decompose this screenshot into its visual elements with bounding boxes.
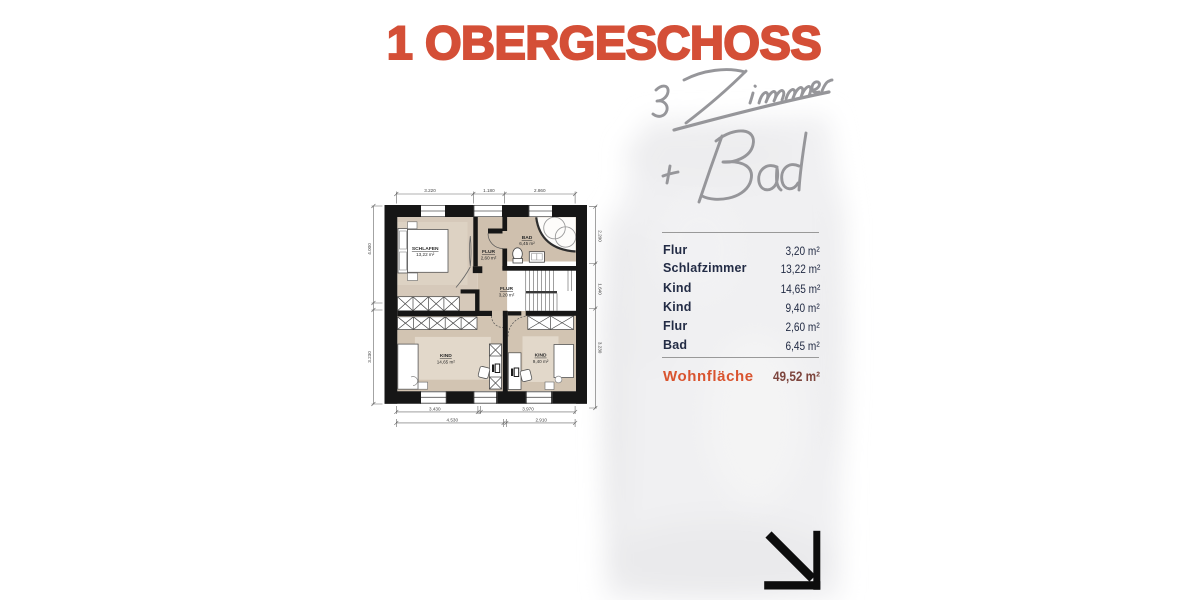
svg-text:2,60 m²: 2,60 m² (481, 256, 497, 261)
svg-text:KIND: KIND (535, 353, 547, 359)
svg-text:1.180: 1.180 (483, 188, 495, 193)
svg-text:BAD: BAD (522, 235, 533, 241)
svg-text:FLUR: FLUR (482, 249, 496, 255)
svg-text:4.000: 4.000 (367, 243, 372, 255)
svg-text:13,22 m²: 13,22 m² (416, 252, 435, 257)
svg-text:2.860: 2.860 (534, 188, 546, 193)
svg-text:KIND: KIND (440, 353, 452, 359)
svg-text:14,65 m²: 14,65 m² (437, 359, 456, 364)
svg-text:3.230: 3.230 (598, 342, 603, 354)
svg-text:2.910: 2.910 (535, 417, 547, 422)
svg-text:1.640: 1.640 (598, 283, 603, 295)
svg-text:2.200: 2.200 (598, 230, 603, 242)
svg-text:FLUR: FLUR (500, 286, 514, 292)
svg-text:3.430: 3.430 (429, 406, 441, 411)
svg-text:4.530: 4.530 (447, 417, 459, 422)
svg-text:3.970: 3.970 (522, 406, 534, 411)
svg-text:3,20 m²: 3,20 m² (499, 292, 515, 297)
svg-text:9,40 m²: 9,40 m² (533, 359, 549, 364)
svg-text:6,45 m²: 6,45 m² (519, 241, 535, 246)
svg-text:3.230: 3.230 (367, 351, 372, 363)
svg-text:3.220: 3.220 (424, 188, 436, 193)
svg-text:SCHLAFEN: SCHLAFEN (412, 246, 439, 252)
